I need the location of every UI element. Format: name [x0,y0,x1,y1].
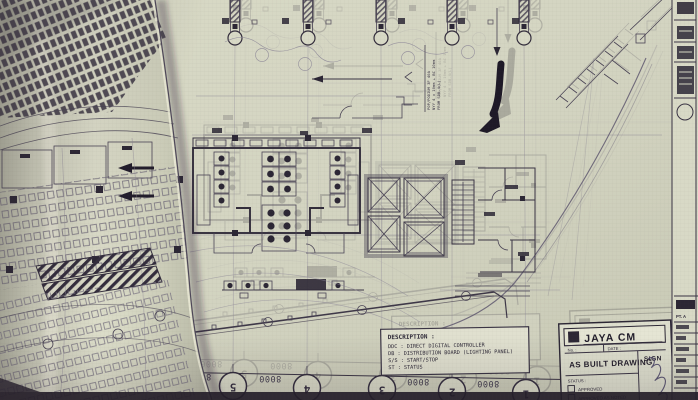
approved-option: APPROVED [578,386,603,392]
status-label: STATUS : [568,378,586,384]
column-symbol [301,0,315,45]
side-strip: PT. A [672,0,698,400]
dimension-label: 8000 [407,376,429,386]
svg-text:DESCRIPTION :: DESCRIPTION : [399,320,446,328]
dimension-label: 8000 [477,378,499,388]
column-symbol [517,0,531,45]
blueprint-photo: POP/PODIUM 3F 40A NYY 4 x 10mm + BC 10mm… [0,0,698,400]
no-label: No. : [568,347,577,352]
dimension-label: 8000 [259,373,281,383]
description-entry: ST : STATUS [388,365,422,372]
svg-text:8000: 8000 [270,360,292,370]
svg-text:5: 5 [230,381,237,394]
company-logo [568,331,579,342]
description-box: DESCRIPTION : DDC : DIRECT DIGITAL CONTR… [381,327,530,376]
title-block: JAYA CM No. : DATE : AS BUILT DRAWING SI… [559,320,674,400]
date-label: DATE : [608,346,621,351]
column-symbol [445,0,459,45]
side-logo [676,300,695,309]
sign-label: SIGN [644,355,662,363]
cable-tag-line3: FROM SDB-4(L) [436,80,441,110]
description-entry: S/S : START/STOP [388,357,438,364]
side-company: PT. A [676,314,686,319]
svg-text:FROM SDB-4(L): FROM SDB-4(L) [447,67,452,97]
lower-chair-rows [0,280,196,400]
column-symbol [374,0,388,45]
blueprint-canvas: POP/PODIUM 3F 40A NYY 4 x 10mm + BC 10mm… [0,0,698,400]
description-title: DESCRIPTION : [388,333,435,341]
